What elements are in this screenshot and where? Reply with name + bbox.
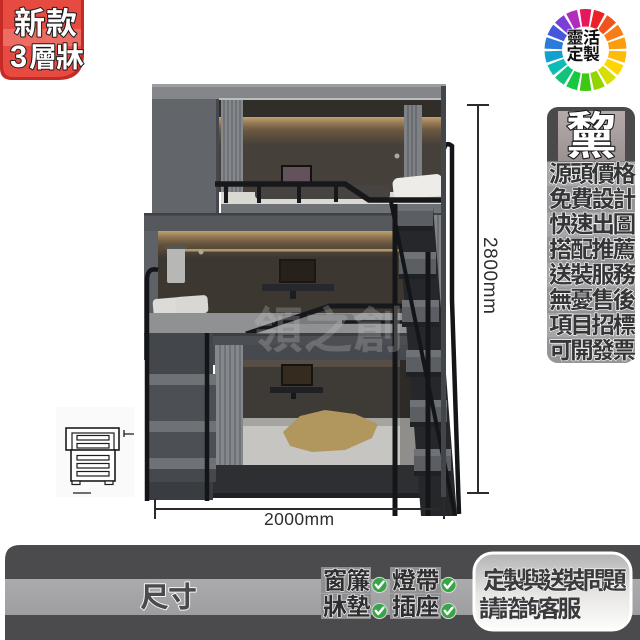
svg-text:2800mm: 2800mm (479, 237, 500, 315)
svg-text:2000mm: 2000mm (264, 509, 335, 529)
